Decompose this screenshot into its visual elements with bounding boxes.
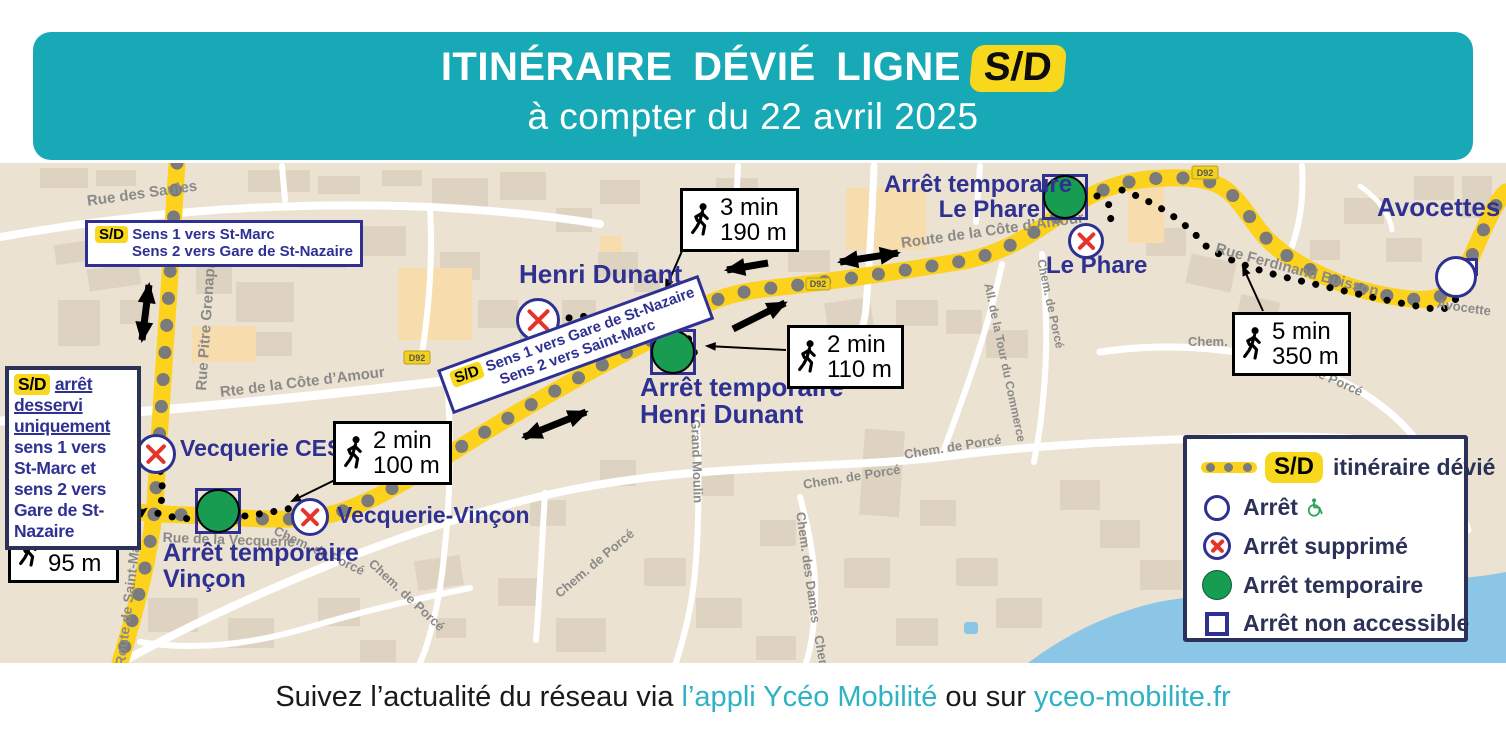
stop-supprime-vecquerie-ces: [136, 434, 176, 474]
title-text: ITINÉRAIRE DÉVIÉ LIGNE: [441, 45, 961, 89]
wheelchair-icon: [1305, 497, 1326, 518]
stop-label: Arrêt temporaire Vinçon: [163, 540, 359, 593]
line-badge: S/D: [1265, 452, 1323, 483]
stop-label: Arrêt temporaire Le Phare: [884, 172, 1040, 222]
legend-row-non-accessible: Arrêt non accessible: [1201, 610, 1452, 637]
road-shield: D92: [810, 279, 827, 289]
poster-title: ITINÉRAIRE DÉVIÉ LIGNES/D: [33, 45, 1473, 92]
line-badge: S/D: [14, 374, 50, 395]
legend-row-supprime: Arrêt supprimé: [1201, 532, 1452, 560]
footer-message: Suivez l’actualité du réseau via l’appli…: [0, 681, 1506, 714]
stop-avocettes: [1435, 256, 1477, 298]
removed-stop-icon: [1203, 532, 1231, 560]
legend-row-arret: Arrêt: [1201, 494, 1452, 521]
header-banner: ITINÉRAIRE DÉVIÉ LIGNES/D à compter du 2…: [33, 32, 1473, 160]
stop-label: Le Phare: [1046, 253, 1147, 278]
app-link[interactable]: l’appli Ycéo Mobilité: [682, 681, 938, 713]
stop-temporaire-vincon: [195, 488, 241, 534]
road-shield: D92: [409, 353, 426, 363]
line-badge: S/D: [95, 226, 128, 243]
direction-box-north: S/D Sens 1 vers St-Marc Sens 2 vers Gare…: [85, 220, 363, 267]
walk-box-350m: 5 min350 m: [1232, 312, 1351, 376]
note-box-arret-desservi: S/D arrêt desservi uniquement sens 1 ver…: [5, 366, 141, 550]
pedestrian-icon: [688, 200, 715, 240]
walk-box-190m: 3 min190 m: [680, 188, 799, 252]
stop-supprime-vecquerie-vincon: [291, 498, 329, 536]
deviated-route-sample-icon: [1201, 462, 1257, 473]
non-accessible-stop-icon: [1205, 612, 1229, 636]
stop-label: Vecquerie-Vinçon: [337, 503, 530, 527]
deviation-poster: ITINÉRAIRE DÉVIÉ LIGNES/D à compter du 2…: [0, 0, 1506, 738]
temporary-stop-icon: [1203, 571, 1231, 599]
poster-subtitle: à compter du 22 avril 2025: [33, 96, 1473, 138]
pedestrian-icon: [795, 337, 822, 377]
walk-box-110m: 2 min110 m: [787, 325, 904, 389]
stop-label: Henri Dunant: [519, 261, 682, 288]
pedestrian-icon: [1240, 324, 1267, 364]
stop-label: Avocettes: [1377, 194, 1500, 221]
stop-label: Vecquerie CES: [180, 436, 342, 460]
road-shield: D92: [1197, 168, 1214, 178]
legend-row-temporaire: Arrêt temporaire: [1201, 571, 1452, 599]
stop-icon: [1204, 495, 1230, 521]
legend: S/D itinéraire dévié Arrêt Arrêt supprim…: [1183, 435, 1468, 642]
walk-box-100m: 2 min100 m: [333, 421, 452, 485]
website-link[interactable]: yceo-mobilite.fr: [1034, 681, 1231, 713]
map: D92 D92 D92 D92 Rue des Saules Rue Pitre…: [0, 163, 1506, 663]
street-label: Grand Moulin: [688, 419, 706, 503]
line-badge: S/D: [969, 45, 1067, 92]
pedestrian-icon: [341, 433, 368, 473]
temporary-stop-icon: [196, 489, 240, 533]
legend-row-route: S/D itinéraire dévié: [1201, 452, 1452, 483]
